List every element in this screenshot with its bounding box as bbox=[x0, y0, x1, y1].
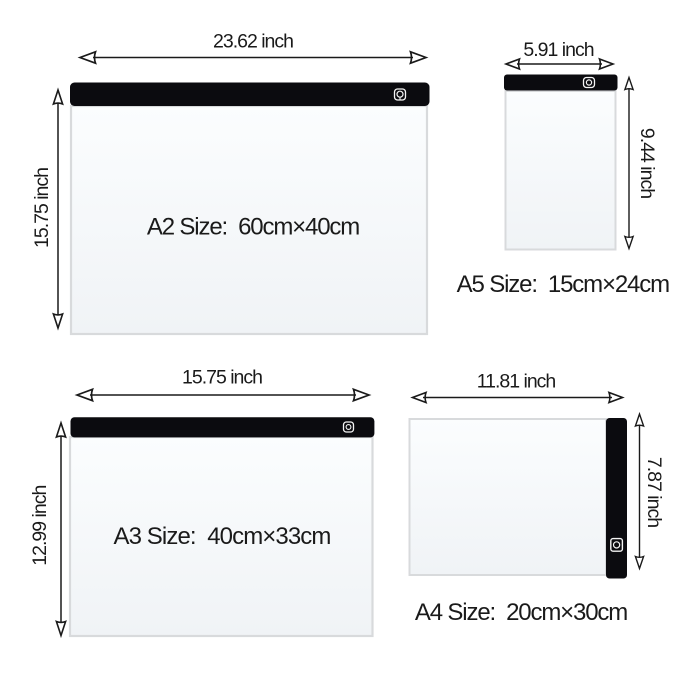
svg-text:15.75 inch: 15.75 inch bbox=[182, 367, 262, 389]
svg-text:12.99 inch: 12.99 inch bbox=[29, 486, 51, 566]
svg-text:9.44 inch: 9.44 inch bbox=[636, 128, 658, 198]
svg-text:A3 Size: 40cm×33cm: A3 Size: 40cm×33cm bbox=[113, 523, 330, 550]
svg-text:11.81 inch: 11.81 inch bbox=[477, 371, 556, 393]
svg-text:A2 Size: 60cm×40cm: A2 Size: 60cm×40cm bbox=[147, 214, 359, 241]
svg-text:23.62 inch: 23.62 inch bbox=[213, 31, 293, 53]
svg-text:15.75 inch: 15.75 inch bbox=[31, 168, 53, 248]
svg-text:7.87 inch: 7.87 inch bbox=[643, 457, 665, 527]
svg-text:A5 Size: 15cm×24cm: A5 Size: 15cm×24cm bbox=[457, 271, 669, 298]
svg-text:5.91 inch: 5.91 inch bbox=[523, 39, 593, 61]
svg-text:A4 Size: 20cm×30cm: A4 Size: 20cm×30cm bbox=[415, 599, 627, 626]
